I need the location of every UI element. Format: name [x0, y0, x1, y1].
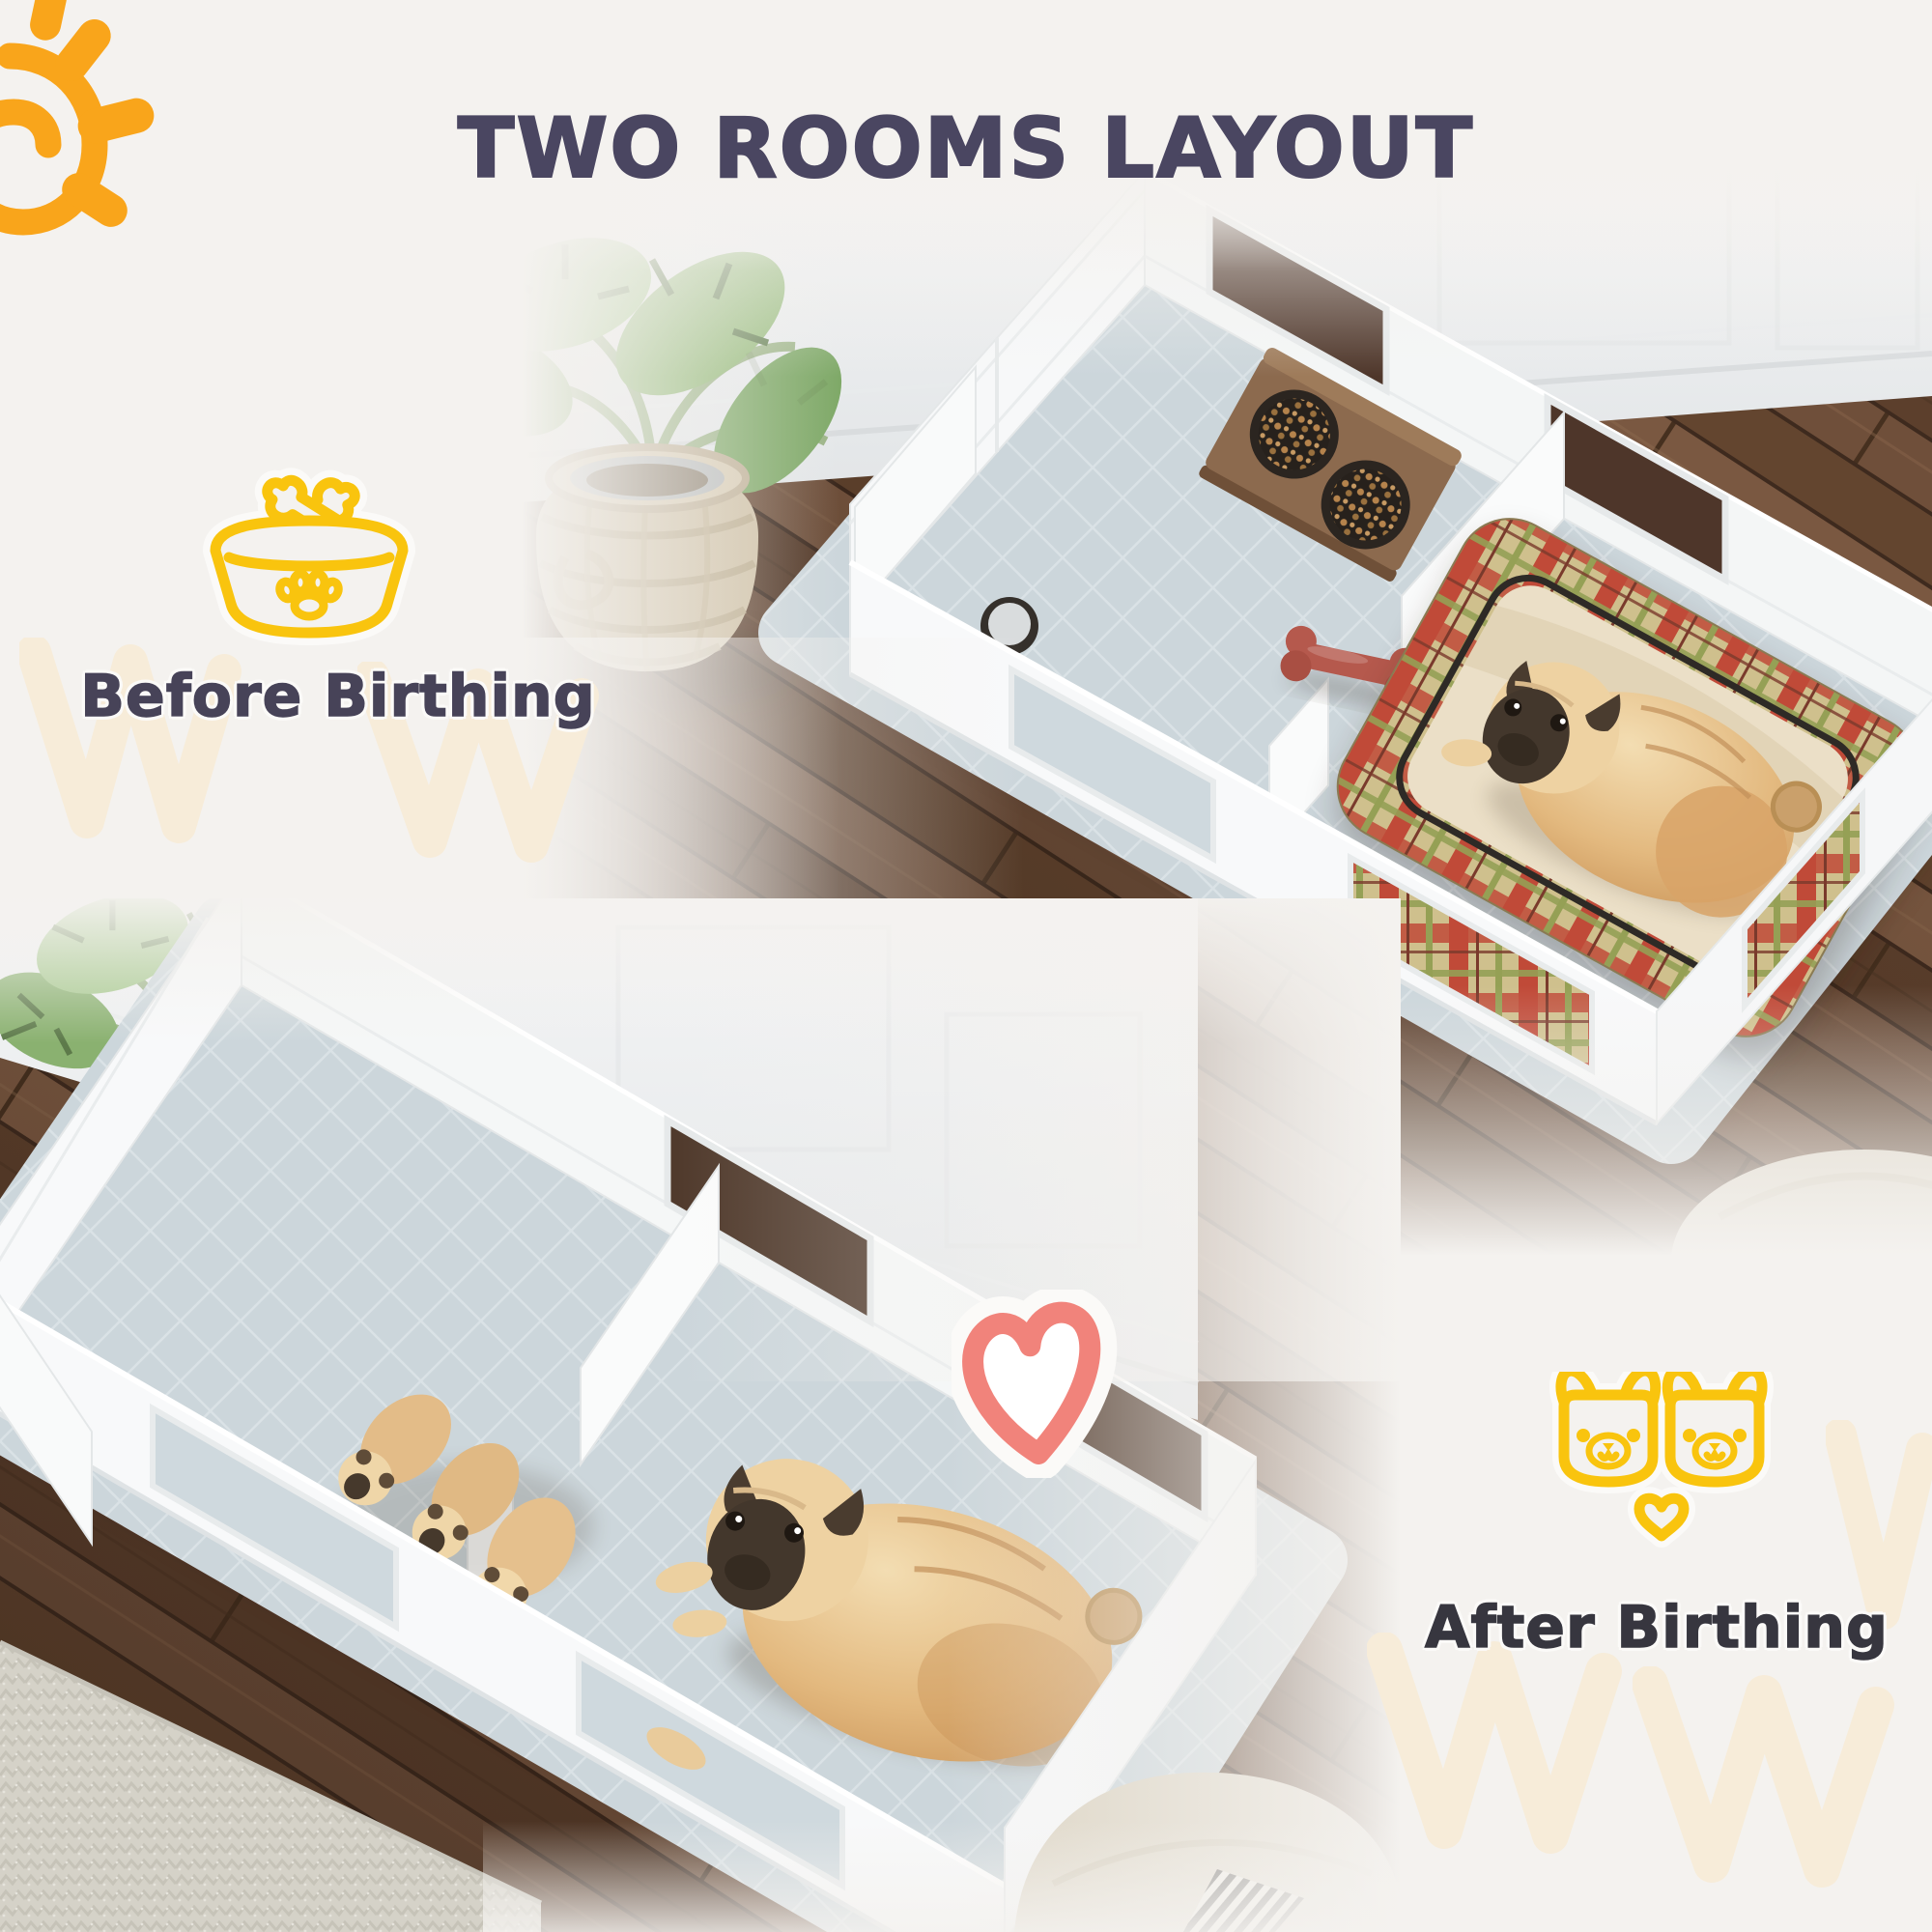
after-birthing-label: After Birthing: [1362, 1594, 1932, 1662]
two-dogs-heart-icon: [1541, 1372, 1782, 1565]
infographic-canvas: TWO ROOMS LAYOUT Before Birth: [0, 0, 1932, 1932]
after-birthing-scene: [0, 898, 1401, 1932]
page-title: TWO ROOMS LAYOUT: [0, 100, 1932, 197]
swoosh-decoration: [1633, 1666, 1898, 1908]
before-birthing-label: Before Birthing: [19, 663, 657, 730]
dog-bowl-bones-icon: [198, 459, 420, 652]
swoosh-decoration: [1367, 1633, 1623, 1874]
heart-doodle-icon: [952, 1290, 1121, 1478]
